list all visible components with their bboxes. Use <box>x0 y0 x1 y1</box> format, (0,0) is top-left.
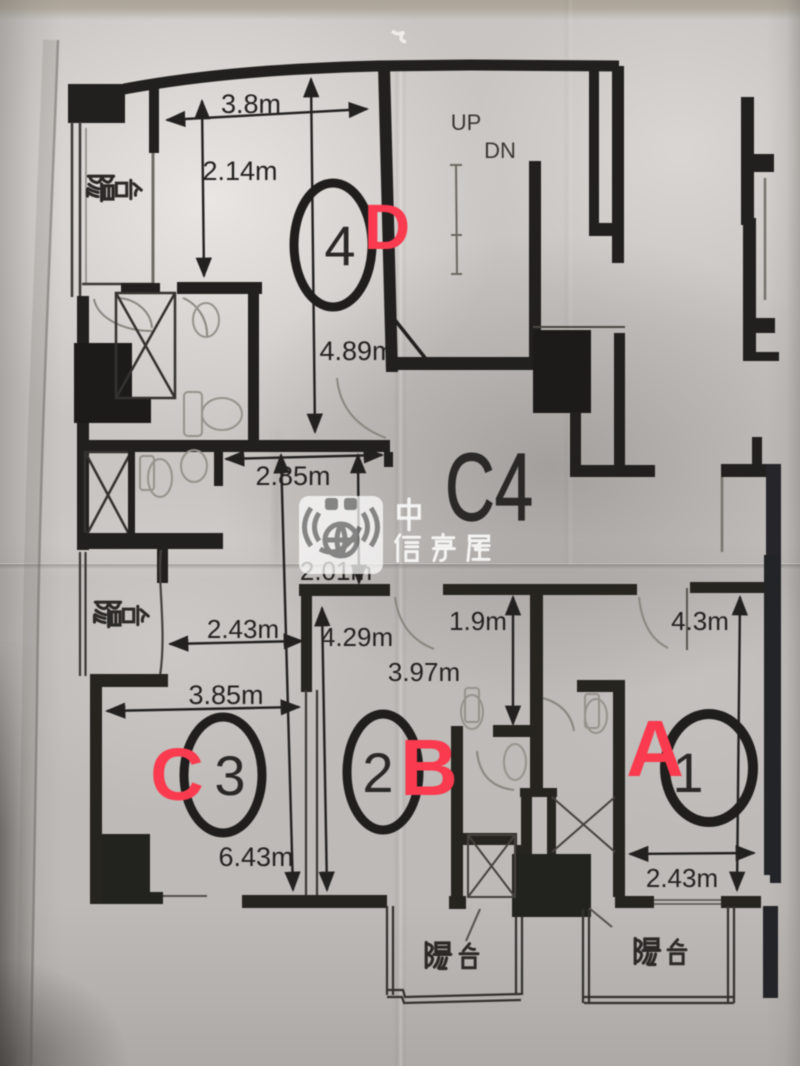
svg-text:2.14m: 2.14m <box>202 156 277 186</box>
svg-text:4.89m: 4.89m <box>319 336 394 366</box>
svg-text:2.85m: 2.85m <box>255 461 330 491</box>
svg-text:3.97m: 3.97m <box>388 657 460 687</box>
svg-text:2.43m: 2.43m <box>646 863 718 893</box>
svg-text:DN: DN <box>484 138 516 163</box>
svg-text:4.3m: 4.3m <box>671 606 729 636</box>
svg-text:3.85m: 3.85m <box>188 680 263 710</box>
svg-text:UP: UP <box>451 110 482 135</box>
svg-text:2.43m: 2.43m <box>207 614 279 644</box>
svg-text:A: A <box>626 704 684 793</box>
svg-text:3: 3 <box>214 744 245 807</box>
svg-text:D: D <box>364 191 410 263</box>
svg-text:4.29m: 4.29m <box>321 622 393 652</box>
svg-text:C: C <box>150 733 203 816</box>
svg-text:4: 4 <box>324 214 355 277</box>
svg-text:C4: C4 <box>445 434 533 541</box>
svg-text:6.43m: 6.43m <box>218 842 293 872</box>
svg-text:3.8m: 3.8m <box>221 89 281 119</box>
svg-text:B: B <box>400 723 458 812</box>
svg-text:1.9m: 1.9m <box>449 606 507 636</box>
svg-text:2: 2 <box>362 741 393 804</box>
